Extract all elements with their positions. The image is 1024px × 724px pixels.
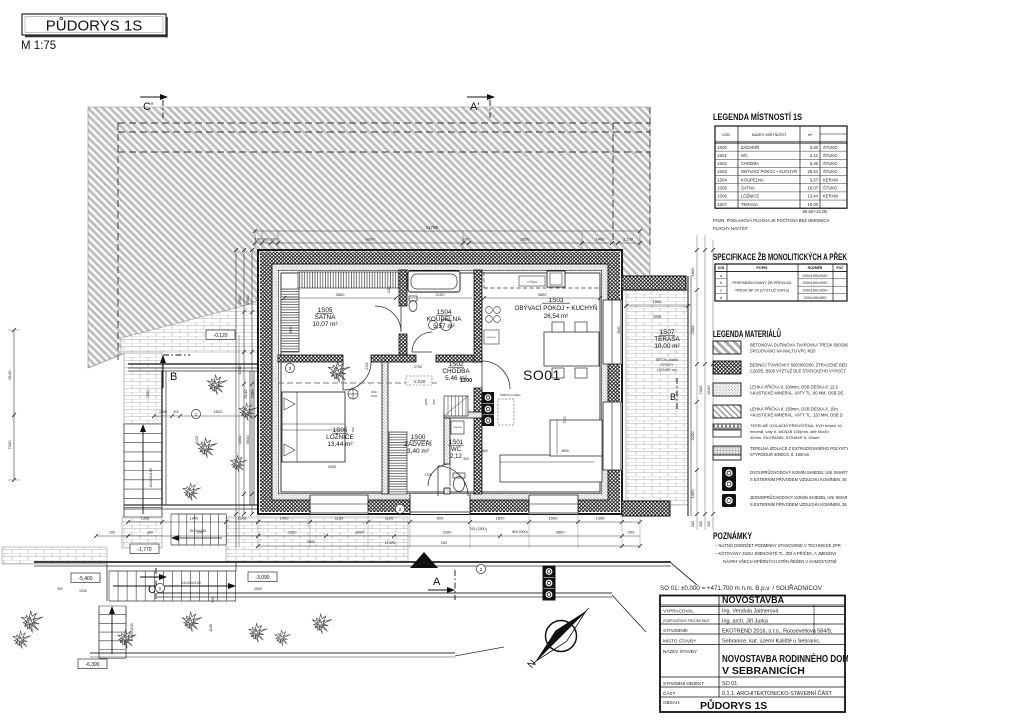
svg-text:POČ: POČ xyxy=(837,265,845,270)
svg-text:11320: 11320 xyxy=(385,540,397,545)
svg-text:200: 200 xyxy=(271,237,278,242)
svg-text:6000: 6000 xyxy=(366,237,376,242)
svg-text:-6,390: -6,390 xyxy=(85,662,99,668)
svg-text:1800: 1800 xyxy=(690,267,695,277)
svg-text:200: 200 xyxy=(441,541,447,545)
svg-text:Ing. Vendula Jaitnerová: Ing. Vendula Jaitnerová xyxy=(722,609,778,615)
svg-text:1900: 1900 xyxy=(307,540,315,544)
svg-text:1800: 1800 xyxy=(496,516,506,521)
svg-text:3940: 3940 xyxy=(617,326,621,334)
svg-text:3200: 3200 xyxy=(328,465,336,469)
svg-text:DVOUPRŮCHODOVÝ KOMÍN SHIEDEL U: DVOUPRŮCHODOVÝ KOMÍN SHIEDEL UNI SMART xyxy=(750,470,848,475)
svg-text:C20/25, B500 VÝZTUŽ DLE STATIC: C20/25, B500 VÝZTUŽ DLE STATICKÉHO VÝPOČ… xyxy=(750,369,846,374)
svg-text:-0,120: -0,120 xyxy=(213,333,227,339)
svg-text:3,40 m²: 3,40 m² xyxy=(407,448,429,455)
svg-text:1S03: 1S03 xyxy=(717,169,727,174)
svg-text:300: 300 xyxy=(173,410,179,414)
svg-text:TEPELNÁ IZOLACE Z EXTRUDOVANÉH: TEPELNÁ IZOLACE Z EXTRUDOVANÉHO POLYSTYR xyxy=(750,446,852,451)
svg-text:ŠTUKO: ŠTUKO xyxy=(823,145,838,150)
svg-text:10,07 m²: 10,07 m² xyxy=(312,321,337,328)
svg-text:2000: 2000 xyxy=(690,325,695,335)
svg-text:SO 01: ±0,000 = +471,700 m: SO 01: ±0,000 = +471,700 m n.m. B.p.v. /… xyxy=(660,584,823,592)
svg-text:OBSAH:: OBSAH: xyxy=(663,700,680,705)
svg-text:PREFABRIKOVANÝ ŽB PŘEKLAD: PREFABRIKOVANÝ ŽB PŘEKLAD xyxy=(732,280,791,285)
svg-text:VÝŠKA: VÝŠKA xyxy=(527,279,537,284)
svg-text:– NUTNO DODRŽET PODMÍNKY STANO: – NUTNO DODRŽET PODMÍNKY STANOVENÉ V TEC… xyxy=(715,543,841,548)
svg-text:4120: 4120 xyxy=(195,436,199,444)
svg-text:3800: 3800 xyxy=(336,292,346,297)
svg-text:0.1.1. ARCHITEKTONICKO-STAVEBN: 0.1.1. ARCHITEKTONICKO-STAVEBNÍ ČÁST xyxy=(722,690,833,697)
svg-text:LOŽNICE: LOŽNICE xyxy=(741,194,759,199)
svg-text:2520: 2520 xyxy=(214,409,224,414)
svg-text:3690: 3690 xyxy=(561,449,569,453)
svg-text:200: 200 xyxy=(463,237,470,242)
svg-text:13,44: 13,44 xyxy=(808,194,819,199)
svg-text:3,40: 3,40 xyxy=(810,145,819,150)
svg-text:d: d xyxy=(720,295,722,300)
svg-text:8160: 8160 xyxy=(706,385,711,395)
svg-text:VYPRACOVAL: VYPRACOVAL xyxy=(663,609,694,614)
svg-text:2100: 2100 xyxy=(436,292,446,297)
svg-text:ČÁST: ČÁST xyxy=(663,690,675,696)
svg-text:NOVOSTAVBA: NOVOSTAVBA xyxy=(722,595,785,605)
svg-text:1350: 1350 xyxy=(596,516,606,521)
svg-text:2650: 2650 xyxy=(237,295,242,305)
svg-text:A': A' xyxy=(470,101,479,113)
svg-text:7000: 7000 xyxy=(563,416,567,424)
svg-text:LEGENDA MATERIÁLŮ: LEGENDA MATERIÁLŮ xyxy=(713,328,781,339)
svg-text:– KÓTOVÁNY JSOU JMENOVITĚ TL.: – KÓTOVÁNY JSOU JMENOVITĚ TL. ZDÍ A PŘÍČ… xyxy=(715,551,836,556)
svg-text:2700: 2700 xyxy=(414,365,422,369)
svg-text:1S06: 1S06 xyxy=(717,194,727,199)
svg-text:NOVOSTAVBA RODINNÉHO DOM: NOVOSTAVBA RODINNÉHO DOM xyxy=(722,652,849,665)
svg-text:KRBOVÁ KAMNA: KRBOVÁ KAMNA xyxy=(500,393,521,397)
svg-text:250: 250 xyxy=(628,530,635,535)
svg-text:ZODPOVĚDNÝ PROJEKTANT: ZODPOVĚDNÝ PROJEKTANT xyxy=(663,618,710,623)
svg-text:10,07: 10,07 xyxy=(808,186,819,191)
svg-text:200: 200 xyxy=(197,531,203,535)
svg-text:LEDNICE: LEDNICE xyxy=(486,337,496,339)
svg-text:100: 100 xyxy=(351,427,355,432)
svg-text:A: A xyxy=(433,576,441,588)
svg-text:1150: 1150 xyxy=(237,365,242,374)
svg-text:1970: 1970 xyxy=(424,398,428,405)
svg-text:300: 300 xyxy=(57,587,63,591)
svg-text:1150: 1150 xyxy=(387,286,391,293)
svg-text:26,54: 26,54 xyxy=(808,169,819,174)
svg-text:LEHKÁ PŘÍČKA tl. 150mm, OSB DE: LEHKÁ PŘÍČKA tl. 150mm, OSB DESKA tl. 15… xyxy=(750,407,838,412)
svg-text:3800: 3800 xyxy=(556,530,566,535)
svg-text:5,46: 5,46 xyxy=(810,161,819,166)
svg-text:2200: 2200 xyxy=(238,517,246,521)
svg-text:7000: 7000 xyxy=(698,385,703,395)
svg-text:2200: 2200 xyxy=(288,530,298,535)
svg-text:1400: 1400 xyxy=(596,237,606,242)
svg-text:7000: 7000 xyxy=(7,440,12,450)
svg-text:ŠTUKO: ŠTUKO xyxy=(823,169,838,174)
svg-text:200x190x990: 200x190x990 xyxy=(804,296,827,300)
svg-text:1970: 1970 xyxy=(371,394,378,398)
svg-text:OZN: OZN xyxy=(722,133,730,137)
svg-text:1200: 1200 xyxy=(159,410,167,414)
svg-text:CHODBA: CHODBA xyxy=(442,368,470,375)
svg-text:LOŽNICE: LOŽNICE xyxy=(326,432,354,441)
svg-text:KERAM: KERAM xyxy=(823,194,838,199)
svg-text:200x190x1990: 200x190x1990 xyxy=(803,281,828,285)
svg-text:900: 900 xyxy=(463,457,469,461)
svg-text:4200: 4200 xyxy=(237,435,242,445)
svg-text:1500x500 mm: 1500x500 mm xyxy=(657,368,678,372)
svg-text:1100: 1100 xyxy=(385,516,394,521)
svg-text:ZÁDVEŘÍ: ZÁDVEŘÍ xyxy=(741,145,760,150)
svg-text:KOUPELNA: KOUPELNA xyxy=(741,177,764,182)
svg-text:2: 2 xyxy=(289,366,292,372)
svg-text:300: 300 xyxy=(263,237,270,242)
svg-text:-5,400: -5,400 xyxy=(78,576,92,582)
svg-text:ŠATNA: ŠATNA xyxy=(741,186,755,191)
svg-text:300: 300 xyxy=(211,597,215,603)
svg-text:250: 250 xyxy=(691,521,695,527)
svg-text:8140: 8140 xyxy=(243,389,248,399)
svg-text:KOUPELNA: KOUPELNA xyxy=(427,316,463,323)
svg-text:1: 1 xyxy=(159,586,162,592)
svg-text:TRESK BP 20 (VÝZTUŽ 2xR10): TRESK BP 20 (VÝZTUŽ 2xR10) xyxy=(735,288,790,293)
svg-text:minerál. vaty tl. 160/(ZB 100): minerál. vaty tl. 160/(ZB 100)mm, latě 6… xyxy=(750,429,829,434)
svg-text:LEGENDA MÍSTNOSTÍ 1S: LEGENDA MÍSTNOSTÍ 1S xyxy=(713,111,802,122)
svg-text:TERASY: TERASY xyxy=(661,363,675,367)
svg-text:7000: 7000 xyxy=(250,389,255,399)
svg-text:1400: 1400 xyxy=(690,489,695,499)
svg-text:10,00: 10,00 xyxy=(808,202,819,207)
svg-text:MÍSTO STAVBY: MÍSTO STAVBY xyxy=(663,638,696,644)
svg-text:2020: 2020 xyxy=(145,389,150,399)
svg-text:300: 300 xyxy=(147,531,153,535)
svg-text:POPIS: POPIS xyxy=(757,266,769,270)
svg-text:1S00: 1S00 xyxy=(717,145,727,150)
svg-text:ŠATNA: ŠATNA xyxy=(315,312,337,321)
svg-text:SPOJOVÁNO NA MALTU VPC M10: SPOJOVÁNO NA MALTU VPC M10 xyxy=(750,349,816,354)
svg-text:1: 1 xyxy=(195,412,198,418)
svg-text:-2,020: -2,020 xyxy=(413,379,426,384)
svg-text:PLOCHY NAVÝŠIT: PLOCHY NAVÝŠIT xyxy=(713,226,749,231)
svg-text:LEHKÁ PŘÍČKA tl. 100mm, OSB DE: LEHKÁ PŘÍČKA tl. 100mm, OSB DESKA tl. 12… xyxy=(750,385,839,390)
svg-text:ŠTUKO: ŠTUKO xyxy=(823,161,838,166)
svg-text:C: C xyxy=(148,584,156,596)
svg-text:2200: 2200 xyxy=(443,530,453,535)
svg-text:2650: 2650 xyxy=(245,295,250,305)
svg-text:140: 140 xyxy=(255,237,262,242)
svg-text:1900: 1900 xyxy=(280,516,290,521)
svg-text:3650: 3650 xyxy=(521,237,531,242)
svg-text:TEPELNĚ IZOLAČNÍ PŘEDSTĚNA, KV: TEPELNĚ IZOLAČNÍ PŘEDSTĚNA, KVH hranol 1… xyxy=(750,423,842,428)
svg-text:1200: 1200 xyxy=(79,589,87,593)
svg-text:TERASA: TERASA xyxy=(654,336,680,343)
svg-text:PŮDORYS 1S: PŮDORYS 1S xyxy=(46,17,142,35)
svg-text:TERASA: TERASA xyxy=(741,202,758,207)
svg-text:160: 160 xyxy=(707,521,711,527)
svg-text:1500: 1500 xyxy=(254,587,262,591)
svg-text:BETONOVÁ DUTINOVÁ TVAROVKA TRE: BETONOVÁ DUTINOVÁ TVAROVKA TRESK 500/200 xyxy=(750,343,849,348)
svg-text:1,100: 1,100 xyxy=(623,237,634,242)
svg-text:1500: 1500 xyxy=(549,516,559,521)
svg-text:NÁZEV MÍSTNOSTÍ: NÁZEV MÍSTNOSTÍ xyxy=(752,133,787,137)
svg-text:-1,770: -1,770 xyxy=(137,547,151,553)
svg-text:2200: 2200 xyxy=(690,431,695,441)
svg-text:-3,090: -3,090 xyxy=(255,575,269,581)
svg-text:5,57 m²: 5,57 m² xyxy=(433,323,455,330)
svg-text:SPECIFIKACE ŽB MONOLITICKÝCH: SPECIFIKACE ŽB MONOLITICKÝCH A PŘEK xyxy=(713,251,847,262)
svg-text:WC: WC xyxy=(451,447,462,453)
svg-text:Sebranice, kat. území Kaliště: Sebranice, kat. území Kaliště u Sebranic… xyxy=(722,639,821,645)
svg-text:160: 160 xyxy=(109,531,115,535)
svg-text:1900: 1900 xyxy=(190,517,198,521)
svg-text:BETON. dlažba: BETON. dlažba xyxy=(656,358,678,362)
svg-text:1S04: 1S04 xyxy=(717,177,727,182)
svg-text:NÁVRH VŠECH OPĚRNÝCH STĚN ŘEŠE: NÁVRH VŠECH OPĚRNÝCH STĚN ŘEŠEN V SAMOST… xyxy=(723,559,837,564)
svg-text:1350: 1350 xyxy=(141,517,149,521)
svg-text:700 (1500): 700 (1500) xyxy=(469,527,486,531)
svg-text:2650: 2650 xyxy=(289,326,293,334)
svg-text:PRAČKA: PRAČKA xyxy=(453,426,462,429)
svg-text:600: 600 xyxy=(437,516,444,521)
svg-text:AKUSTICKÉ MINERÁL. VATY TL. 12: AKUSTICKÉ MINERÁL. VATY TL. 120 MM, OSB … xyxy=(750,413,843,418)
svg-text:26,54 m²: 26,54 m² xyxy=(544,313,568,320)
svg-text:5,46 m²: 5,46 m² xyxy=(445,375,467,382)
svg-text:STAVEBNÍK: STAVEBNÍK xyxy=(663,627,689,633)
svg-text:PŮDORYS 1S: PŮDORYS 1S xyxy=(700,698,767,712)
svg-text:5,57: 5,57 xyxy=(810,177,819,182)
svg-text:NÁZEV STAVBY: NÁZEV STAVBY xyxy=(663,648,697,654)
svg-text:ZÁDVEŘÍ: ZÁDVEŘÍ xyxy=(404,439,432,448)
svg-text:SO01: SO01 xyxy=(523,367,561,383)
svg-text:800: 800 xyxy=(432,399,436,404)
svg-text:JEDNOPRŮCHODOVÝ KOMÍN SHIEDEL: JEDNOPRŮCHODOVÝ KOMÍN SHIEDEL UNI SMAR xyxy=(750,495,847,500)
svg-text:2,12: 2,12 xyxy=(450,454,462,460)
svg-text:S EXTERNÍM PŘÍVODEM VZDUCHU KO: S EXTERNÍM PŘÍVODEM VZDUCHU KOMÍNEM, 36 xyxy=(750,477,847,482)
svg-text:200x190x1490: 200x190x1490 xyxy=(803,289,828,293)
svg-text:AKUSTICKÉ MINERÁL. VATY TL. 80: AKUSTICKÉ MINERÁL. VATY TL. 80 MM, OSB D… xyxy=(750,391,843,396)
svg-text:13,44 m²: 13,44 m² xyxy=(327,441,352,448)
svg-text:2: 2 xyxy=(399,507,402,513)
svg-text:EKOTREND 2016, s.r.o., Rooseve: EKOTREND 2016, s.r.o., Rooseveltova 584/… xyxy=(722,629,833,635)
svg-text:OBÝVACÍ POKOJ + KUCHYŇ: OBÝVACÍ POKOJ + KUCHYŇ xyxy=(515,305,598,312)
svg-text:POZNÁMKY: POZNÁMKY xyxy=(713,530,753,541)
svg-text:M 1:75: M 1:75 xyxy=(21,40,56,52)
svg-text:SO 01: SO 01 xyxy=(722,681,737,687)
svg-text:STYRODUR 4000CS, tl. 100mm: STYRODUR 4000CS, tl. 100mm xyxy=(750,452,810,457)
svg-text:ŠTUKO: ŠTUKO xyxy=(823,153,838,158)
svg-text:2000: 2000 xyxy=(653,315,661,319)
svg-text:BEDNICÍ TVAROVKY 500/300/200,: BEDNICÍ TVAROVKY 500/300/200, ZTRACENÉ B… xyxy=(750,363,847,368)
svg-text:11780: 11780 xyxy=(426,225,439,230)
svg-text:Ing. arch. Jiří Jurka: Ing. arch. Jiří Jurka xyxy=(722,619,768,625)
svg-text:1100: 1100 xyxy=(209,624,213,632)
svg-text:C': C' xyxy=(143,101,153,113)
svg-text:1150: 1150 xyxy=(335,516,344,521)
svg-text:ROZMĚR: ROZMĚR xyxy=(808,265,823,270)
svg-text:c: c xyxy=(720,288,722,293)
svg-text:1S07: 1S07 xyxy=(717,202,727,207)
svg-text:OZN: OZN xyxy=(718,266,725,270)
svg-text:1700: 1700 xyxy=(424,473,432,477)
svg-text:560: 560 xyxy=(482,449,488,453)
svg-text:40mm, EKOPANEL STRAMIT tl. 40m: 40mm, EKOPANEL STRAMIT tl. 40mm xyxy=(750,435,820,440)
svg-text:14x300x165: 14x300x165 xyxy=(181,581,201,585)
svg-text:8140: 8140 xyxy=(7,370,12,380)
svg-text:m²: m² xyxy=(808,133,813,137)
svg-text:ŠTUKO: ŠTUKO xyxy=(823,186,838,191)
svg-text:200x190x2490: 200x190x2490 xyxy=(803,274,828,278)
svg-text:1S02: 1S02 xyxy=(717,161,727,166)
svg-text:B: B xyxy=(170,371,177,383)
svg-text:1500: 1500 xyxy=(653,299,663,304)
svg-text:10,00 m²: 10,00 m² xyxy=(654,343,679,350)
svg-text:KERAM: KERAM xyxy=(823,177,838,182)
svg-text:POZN. PODLAHOVÁ PLOCHA JE POČÍ: POZN. PODLAHOVÁ PLOCHA JE POČÍTÁNA BEZ O… xyxy=(713,218,830,223)
svg-text:WC: WC xyxy=(741,153,748,158)
svg-text:6000: 6000 xyxy=(356,530,366,535)
svg-text:2,12: 2,12 xyxy=(810,153,819,158)
svg-text:CHODBA: CHODBA xyxy=(741,161,759,166)
svg-text:1S05: 1S05 xyxy=(717,186,727,191)
svg-text:150: 150 xyxy=(699,521,703,527)
svg-text:600 (900): 600 (900) xyxy=(512,530,527,534)
svg-text:V SEBRANICÍCH: V SEBRANICÍCH xyxy=(722,664,805,677)
svg-text:S EXTERNÍM PŘÍVODEM VZDUCHU KO: S EXTERNÍM PŘÍVODEM VZDUCHU KOMÍNEM, 36 xyxy=(750,502,847,507)
svg-text:STAVEBNÍ OBJEKT: STAVEBNÍ OBJEKT xyxy=(663,680,704,686)
svg-text:OBÝVACÍ POKOJ + KUCHYŇ: OBÝVACÍ POKOJ + KUCHYŇ xyxy=(741,169,797,174)
svg-text:66,60+10,00: 66,60+10,00 xyxy=(802,209,827,214)
svg-text:10x300x165: 10x300x165 xyxy=(149,468,153,488)
svg-text:2150: 2150 xyxy=(365,362,369,370)
svg-text:3940: 3940 xyxy=(245,435,250,445)
svg-text:1S01: 1S01 xyxy=(717,153,727,158)
svg-text:3800: 3800 xyxy=(538,292,548,297)
svg-text:2: 2 xyxy=(480,567,483,573)
